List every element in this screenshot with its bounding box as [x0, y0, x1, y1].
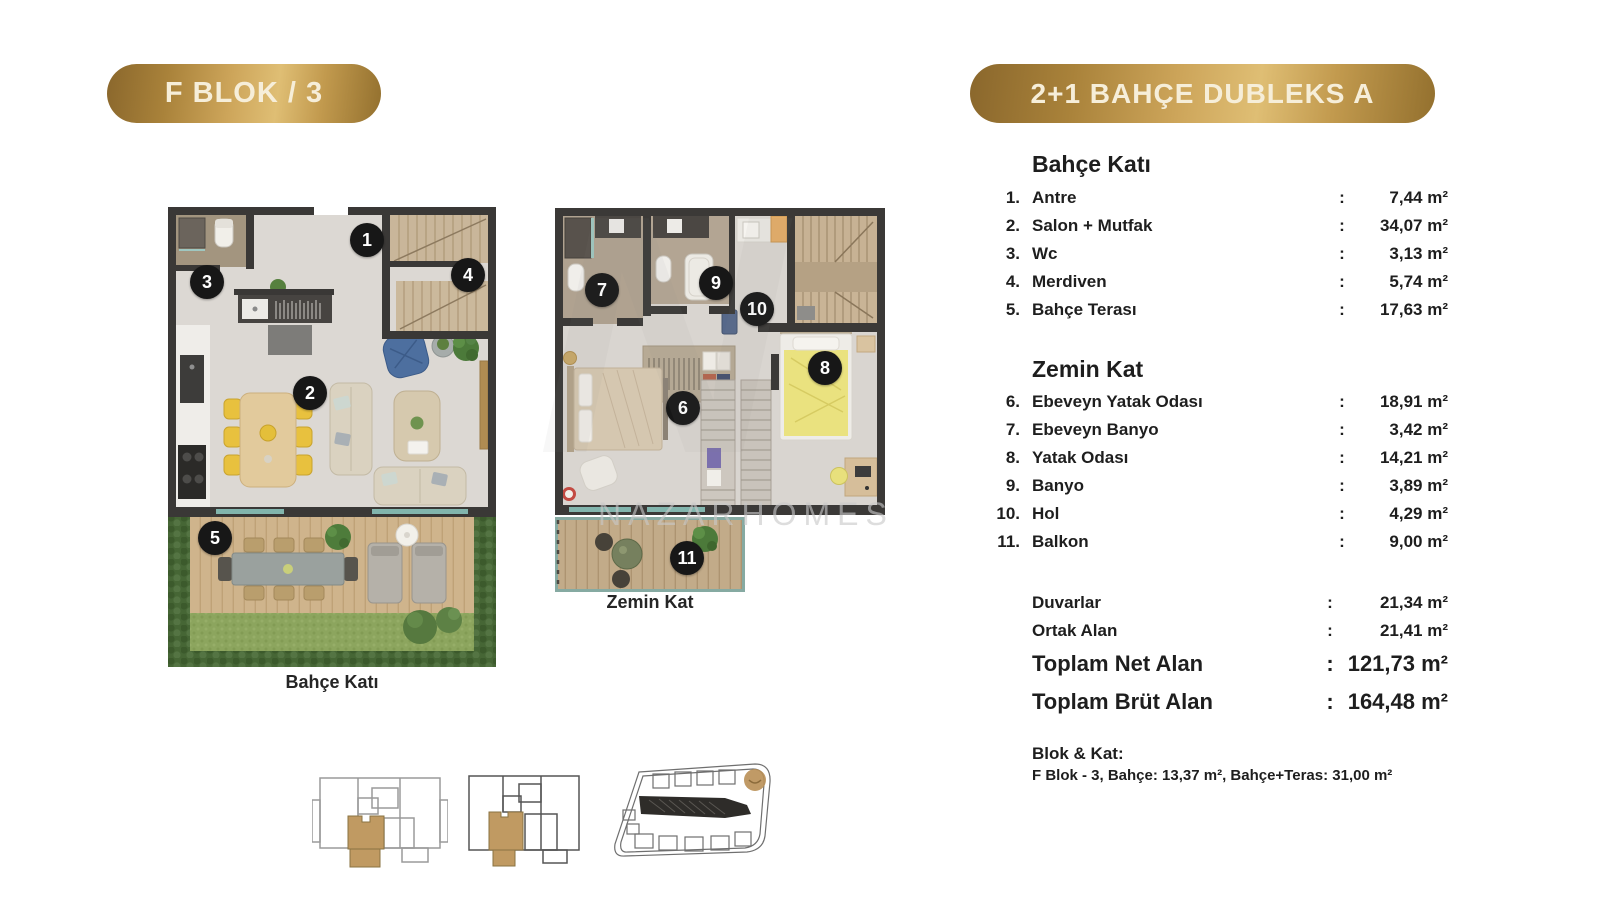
summary-row-val: 21,34 m²: [1338, 593, 1448, 613]
summary-row: Toplam Net Alan:121,73 m²: [980, 645, 1448, 683]
summary-row-colon: :: [1322, 689, 1338, 715]
footer-title: Blok & Kat:: [1032, 744, 1124, 764]
area-row-val: 5,74 m²: [1350, 272, 1448, 292]
area-row-num: 10.: [980, 504, 1020, 524]
summary-list: Duvarlar:21,34 m²Ortak Alan:21,41 m²Topl…: [980, 589, 1448, 721]
plan-caption-bahce-kati: Bahçe Katı: [168, 672, 496, 693]
area-row-val: 3,42 m²: [1350, 420, 1448, 440]
area-row-label: Banyo: [1032, 476, 1334, 496]
area-row-val: 3,89 m²: [1350, 476, 1448, 496]
area-row-val: 9,00 m²: [1350, 532, 1448, 552]
area-row: 7.Ebeveyn Banyo:3,42 m²: [980, 416, 1448, 444]
summary-row-val: 121,73 m²: [1338, 651, 1448, 677]
area-row: 6.Ebeveyn Yatak Odası:18,91 m²: [980, 388, 1448, 416]
area-row-label: Antre: [1032, 188, 1334, 208]
area-row: 1.Antre:7,44 m²: [980, 184, 1448, 212]
summary-row: Ortak Alan:21,41 m²: [980, 617, 1448, 645]
block-highlight-dot: [744, 769, 766, 791]
area-row-colon: :: [1334, 476, 1350, 496]
area-row-val: 34,07 m²: [1350, 216, 1448, 236]
area-row-colon: :: [1334, 300, 1350, 320]
area-row-val: 3,13 m²: [1350, 244, 1448, 264]
summary-row-colon: :: [1322, 651, 1338, 677]
room-marker-2: 2: [293, 376, 327, 410]
area-list-zemin-kat: 6.Ebeveyn Yatak Odası:18,91 m²7.Ebeveyn …: [980, 388, 1448, 556]
room-marker-8: 8: [808, 351, 842, 385]
block-badge-label: F BLOK / 3: [165, 77, 323, 110]
area-row: 8.Yatak Odası:14,21 m²: [980, 444, 1448, 472]
area-row-colon: :: [1334, 392, 1350, 412]
highlighted-unit: [489, 812, 523, 850]
unit-type-badge: 2+1 BAHÇE DUBLEKS A: [970, 64, 1435, 123]
block-badge: F BLOK / 3: [107, 64, 381, 123]
room-marker-11: 11: [670, 541, 704, 575]
section-title-bahce-kati: Bahçe Katı: [1032, 151, 1151, 178]
summary-row-colon: :: [1322, 621, 1338, 641]
area-row-val: 18,91 m²: [1350, 392, 1448, 412]
area-row: 4.Merdiven:5,74 m²: [980, 268, 1448, 296]
area-row-colon: :: [1334, 216, 1350, 236]
area-row-label: Salon + Mutfak: [1032, 216, 1334, 236]
area-row-num: 5.: [980, 300, 1020, 320]
area-row-num: 7.: [980, 420, 1020, 440]
brochure-canvas: F BLOK / 3 2+1 BAHÇE DUBLEKS A: [0, 0, 1600, 900]
room-marker-10: 10: [740, 292, 774, 326]
area-row-label: Ebeveyn Yatak Odası: [1032, 392, 1334, 412]
area-row-num: 3.: [980, 244, 1020, 264]
area-row-colon: :: [1334, 272, 1350, 292]
area-row: 9.Banyo:3,89 m²: [980, 472, 1448, 500]
room-marker-9: 9: [699, 266, 733, 300]
key-plan-1: [312, 772, 448, 870]
area-list-bahce-kati: 1.Antre:7,44 m²2.Salon + Mutfak:34,07 m²…: [980, 184, 1448, 324]
unit-type-badge-label: 2+1 BAHÇE DUBLEKS A: [1031, 78, 1375, 110]
area-row-label: Balkon: [1032, 532, 1334, 552]
area-row: 2.Salon + Mutfak:34,07 m²: [980, 212, 1448, 240]
area-row-colon: :: [1334, 532, 1350, 552]
area-row: 10.Hol:4,29 m²: [980, 500, 1448, 528]
area-row-colon: :: [1334, 244, 1350, 264]
key-plan-2: [463, 772, 585, 870]
room-marker-5: 5: [198, 521, 232, 555]
site-central-spine: [639, 796, 751, 818]
area-row-colon: :: [1334, 188, 1350, 208]
area-row-label: Yatak Odası: [1032, 448, 1334, 468]
summary-row-label: Ortak Alan: [1032, 621, 1322, 641]
footer-detail: F Blok - 3, Bahçe: 13,37 m², Bahçe+Teras…: [1032, 767, 1392, 784]
highlighted-unit: [348, 816, 384, 849]
area-row-num: 2.: [980, 216, 1020, 236]
balcony: [555, 517, 745, 592]
site-plan: [605, 758, 777, 863]
area-row-val: 7,44 m²: [1350, 188, 1448, 208]
area-row: 3.Wc:3,13 m²: [980, 240, 1448, 268]
room-marker-6: 6: [666, 391, 700, 425]
dining-set: [224, 393, 312, 487]
area-row-num: 4.: [980, 272, 1020, 292]
summary-row-val: 164,48 m²: [1338, 689, 1448, 715]
area-row-colon: :: [1334, 448, 1350, 468]
area-row-label: Hol: [1032, 504, 1334, 524]
summary-row: Duvarlar:21,34 m²: [980, 589, 1448, 617]
room-marker-3: 3: [190, 265, 224, 299]
floor-plan-zemin-kat: 67891011: [555, 208, 885, 592]
summary-row-label: Toplam Net Alan: [1032, 651, 1322, 677]
area-row-colon: :: [1334, 420, 1350, 440]
area-row-label: Merdiven: [1032, 272, 1334, 292]
area-row-num: 8.: [980, 448, 1020, 468]
section-title-zemin-kat: Zemin Kat: [1032, 356, 1143, 383]
summary-row-val: 21,41 m²: [1338, 621, 1448, 641]
area-row-colon: :: [1334, 504, 1350, 524]
summary-row: Toplam Brüt Alan:164,48 m²: [980, 683, 1448, 721]
floor-plan-bahce-kati: 12345: [168, 207, 496, 667]
room-marker-1: 1: [350, 223, 384, 257]
summary-row-label: Duvarlar: [1032, 593, 1322, 613]
room-marker-7: 7: [585, 273, 619, 307]
area-row: 5.Bahçe Terası:17,63 m²: [980, 296, 1448, 324]
area-row-label: Bahçe Terası: [1032, 300, 1334, 320]
summary-row-colon: :: [1322, 593, 1338, 613]
summary-row-label: Toplam Brüt Alan: [1032, 689, 1322, 715]
area-row-val: 4,29 m²: [1350, 504, 1448, 524]
stairs: [795, 216, 877, 323]
area-row: 11.Balkon:9,00 m²: [980, 528, 1448, 556]
area-row-label: Wc: [1032, 244, 1334, 264]
area-row-val: 17,63 m²: [1350, 300, 1448, 320]
area-row-num: 9.: [980, 476, 1020, 496]
area-row-num: 6.: [980, 392, 1020, 412]
plan-caption-zemin-kat: Zemin Kat: [555, 592, 745, 613]
area-row-label: Ebeveyn Banyo: [1032, 420, 1334, 440]
area-row-num: 1.: [980, 188, 1020, 208]
room-marker-4: 4: [451, 258, 485, 292]
area-row-val: 14,21 m²: [1350, 448, 1448, 468]
area-row-num: 11.: [980, 532, 1020, 552]
